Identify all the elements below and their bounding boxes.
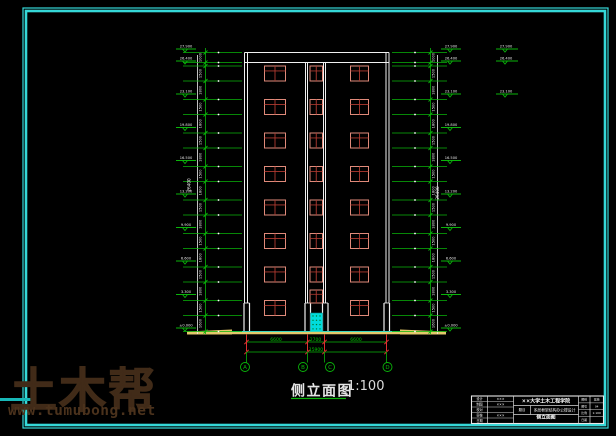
elevation-flag-left-2-label: 23.100 xyxy=(180,90,193,94)
left-level-dot-16 xyxy=(218,300,220,302)
right-level-dot-16 xyxy=(414,300,416,302)
right-level-dot-12 xyxy=(414,233,416,235)
cad-sheet: 1000150018001500180015001800150018001500… xyxy=(0,0,616,436)
elevation-flag-right-7-label: 6.600 xyxy=(446,257,457,261)
left-level-dot-1 xyxy=(218,62,220,64)
elevation-flag-left-0-label: 27.900 xyxy=(180,45,193,49)
right-chain-dim-text: 1800 xyxy=(432,286,436,296)
right-chain-dim-text: 1800 xyxy=(432,85,436,95)
elevation-flag-left-9-label: ±0.000 xyxy=(179,324,193,328)
left-chain-dim-text: 1500 xyxy=(199,68,203,78)
elevation-flag-right-5-label: 13.200 xyxy=(445,190,458,194)
tb-right-label-1: 图号 xyxy=(581,403,587,408)
left-level-dot-13 xyxy=(218,248,220,250)
elevation-flag-left-7-label: 6.600 xyxy=(181,257,192,261)
right-chain-dim-text: 1800 xyxy=(432,252,436,262)
right-chain-dim-text: 1800 xyxy=(432,152,436,162)
elevation-flag-outboard-1-label: 26.400 xyxy=(500,57,513,61)
door-dot xyxy=(316,320,317,321)
right-level-dot-18 xyxy=(414,331,416,333)
elevation-flag-outboard-2-label: 23.100 xyxy=(500,90,513,94)
right-chain-dim-text: 1500 xyxy=(432,236,436,246)
elevation-flag-right-3-label: 19.800 xyxy=(445,123,458,127)
door-dot xyxy=(316,315,317,316)
door-dot xyxy=(312,315,313,316)
axis-letter-B: B xyxy=(301,365,305,371)
right-chain-dim-text: 1800 xyxy=(432,118,436,128)
axis-letter-C: C xyxy=(328,365,332,371)
right-chain-dim-text: 1500 xyxy=(432,303,436,313)
right-level-dot-6 xyxy=(414,132,416,134)
left-level-dot-0 xyxy=(218,52,220,54)
tb-subject: 多层框架结构办公楼设计 xyxy=(534,407,576,412)
overall-height-dim-right: 26400 xyxy=(435,186,440,200)
right-level-dot-5 xyxy=(414,114,416,116)
left-chain-dim-text: 1800 xyxy=(199,185,203,195)
right-level-dot-9 xyxy=(414,181,416,183)
elevation-flag-right-1-label: 26.400 xyxy=(445,57,458,61)
left-level-dot-18 xyxy=(218,331,220,333)
left-level-dot-9 xyxy=(218,181,220,183)
tb-left-label-4: 日期 xyxy=(476,418,482,423)
right-level-dot-2 xyxy=(414,65,416,67)
tb-left-label-3: 审核 xyxy=(476,412,483,417)
elevation-flag-right-6-label: 9.900 xyxy=(446,223,457,227)
right-chain-dim-text: 1500 xyxy=(432,169,436,179)
elevation-flag-outboard-0-label: 27.900 xyxy=(500,45,513,49)
tb-drawing-name: 侧立面图 xyxy=(536,414,555,421)
tb-right-label-2: 比例 xyxy=(581,410,587,415)
left-level-dot-2 xyxy=(218,65,220,67)
right-level-dot-1 xyxy=(414,62,416,64)
left-chain-dim-text: 1800 xyxy=(199,152,203,162)
door-dot xyxy=(319,324,320,325)
right-chain-dim-text: 1500 xyxy=(432,102,436,112)
left-chain-dim-text: 1800 xyxy=(199,219,203,229)
overall-height-dim-left: 26400 xyxy=(187,178,192,192)
right-chain-dim-text: 1500 xyxy=(432,68,436,78)
elevation-flag-left-4-label: 16.500 xyxy=(180,156,193,160)
left-level-dot-15 xyxy=(218,281,220,283)
elevation-flag-left-8-label: 3.300 xyxy=(181,290,192,294)
door-dot xyxy=(316,328,317,329)
right-level-dot-17 xyxy=(414,315,416,317)
dim-text-segment-1: 2700 xyxy=(310,337,322,343)
left-chain-dim-text: 1500 xyxy=(199,269,203,279)
left-level-dot-17 xyxy=(218,315,220,317)
drawing-scale: 1:100 xyxy=(347,379,384,394)
tb-institution: ××大学土木工程学院 xyxy=(522,398,570,405)
left-chain-dim-text: 1500 xyxy=(199,135,203,145)
elevation-flag-left-3-label: 19.800 xyxy=(180,123,193,127)
dim-text-segment-2: 6600 xyxy=(350,337,362,343)
left-chain-dim-text: 1000 xyxy=(199,52,203,62)
drawing-title: 侧立面图 xyxy=(291,383,353,400)
left-level-dot-6 xyxy=(218,132,220,134)
tb-left-value-3: ××× xyxy=(496,413,504,417)
right-level-dot-3 xyxy=(414,80,416,82)
left-chain-dim-text: 1800 xyxy=(199,286,203,296)
elevation-flag-right-2-label: 23.100 xyxy=(445,90,458,94)
dim-text-segment-0: 6600 xyxy=(270,337,282,343)
right-chain-dim-text: 1500 xyxy=(432,135,436,145)
right-chain-dim-text: 1000 xyxy=(432,52,436,62)
elevation-flag-left-6-label: 9.900 xyxy=(181,223,192,227)
axis-letter-A: A xyxy=(243,365,247,371)
right-level-dot-11 xyxy=(414,214,416,216)
left-chain-dim-text: 1500 xyxy=(199,303,203,313)
door-dot xyxy=(319,328,320,329)
right-chain-dim-text: 1500 xyxy=(432,269,436,279)
left-level-dot-14 xyxy=(218,266,220,268)
right-level-dot-0 xyxy=(414,52,416,54)
left-chain-dim-text: 1600 xyxy=(199,318,203,328)
left-chain-dim-text: 1800 xyxy=(199,118,203,128)
left-chain-dim-text: 1500 xyxy=(199,102,203,112)
tb-left-value-0: ××× xyxy=(496,397,504,401)
left-level-dot-3 xyxy=(218,80,220,82)
tb-right-value-2: 1:100 xyxy=(593,411,601,415)
left-level-dot-8 xyxy=(218,166,220,168)
left-level-dot-10 xyxy=(218,199,220,201)
right-chain-dim-text: 1800 xyxy=(432,219,436,229)
left-chain-dim-text: 1800 xyxy=(199,252,203,262)
left-level-dot-5 xyxy=(218,114,220,116)
elevation-drawing: 1000150018001500180015001800150018001500… xyxy=(0,0,616,436)
tb-right-value-1: 04 xyxy=(595,404,599,408)
door-dot xyxy=(316,324,317,325)
right-level-dot-15 xyxy=(414,281,416,283)
left-level-dot-12 xyxy=(218,233,220,235)
tb-left-value-1: ××× xyxy=(496,402,504,406)
door-dot xyxy=(319,320,320,321)
door-dot xyxy=(312,320,313,321)
elevation-flag-right-0-label: 27.900 xyxy=(445,45,458,49)
left-chain-dim-text: 1800 xyxy=(199,85,203,95)
tb-right-label-0: 图别 xyxy=(581,396,587,401)
right-level-dot-7 xyxy=(414,147,416,149)
left-level-dot-7 xyxy=(218,147,220,149)
right-level-dot-13 xyxy=(414,248,416,250)
right-level-dot-14 xyxy=(414,266,416,268)
right-level-dot-8 xyxy=(414,166,416,168)
door-dot xyxy=(319,315,320,316)
tb-left-label-2: 校对 xyxy=(476,407,483,412)
left-chain-dim-text: 1500 xyxy=(199,202,203,212)
right-level-dot-10 xyxy=(414,199,416,201)
door-dot xyxy=(312,324,313,325)
axis-letter-D: D xyxy=(385,365,389,371)
tb-right-value-0: 建施 xyxy=(594,396,600,401)
tb-left-label-1: 制图 xyxy=(476,401,482,406)
left-level-dot-11 xyxy=(218,214,220,216)
elevation-flag-left-1-label: 26.400 xyxy=(180,57,193,61)
right-level-dot-4 xyxy=(414,99,416,101)
dim-text-total: 15900 xyxy=(309,347,323,353)
tb-subject-label: 题目 xyxy=(519,407,526,412)
tb-left-label-0: 设计 xyxy=(476,396,483,401)
left-level-dot-4 xyxy=(218,99,220,101)
elevation-flag-right-4-label: 16.500 xyxy=(445,156,458,160)
left-chain-dim-text: 1500 xyxy=(199,169,203,179)
tb-right-label-3: 日期 xyxy=(581,417,587,422)
door-dot xyxy=(312,328,313,329)
right-chain-dim-text: 1500 xyxy=(432,202,436,212)
elevation-flag-right-8-label: 3.300 xyxy=(446,290,457,294)
elevation-flag-right-9-label: ±0.000 xyxy=(444,324,458,328)
left-chain-dim-text: 1500 xyxy=(199,236,203,246)
right-chain-dim-text: 1600 xyxy=(432,318,436,328)
